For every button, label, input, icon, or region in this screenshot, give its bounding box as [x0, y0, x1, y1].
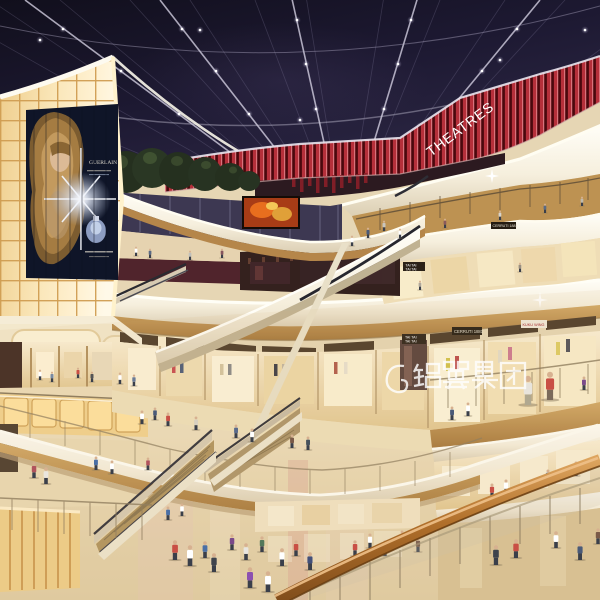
svg-text:CERRUTI 1881: CERRUTI 1881 — [493, 224, 518, 228]
svg-text:GUERLAIN: GUERLAIN — [89, 160, 117, 166]
svg-text:TAI TAI: TAI TAI — [406, 267, 417, 271]
